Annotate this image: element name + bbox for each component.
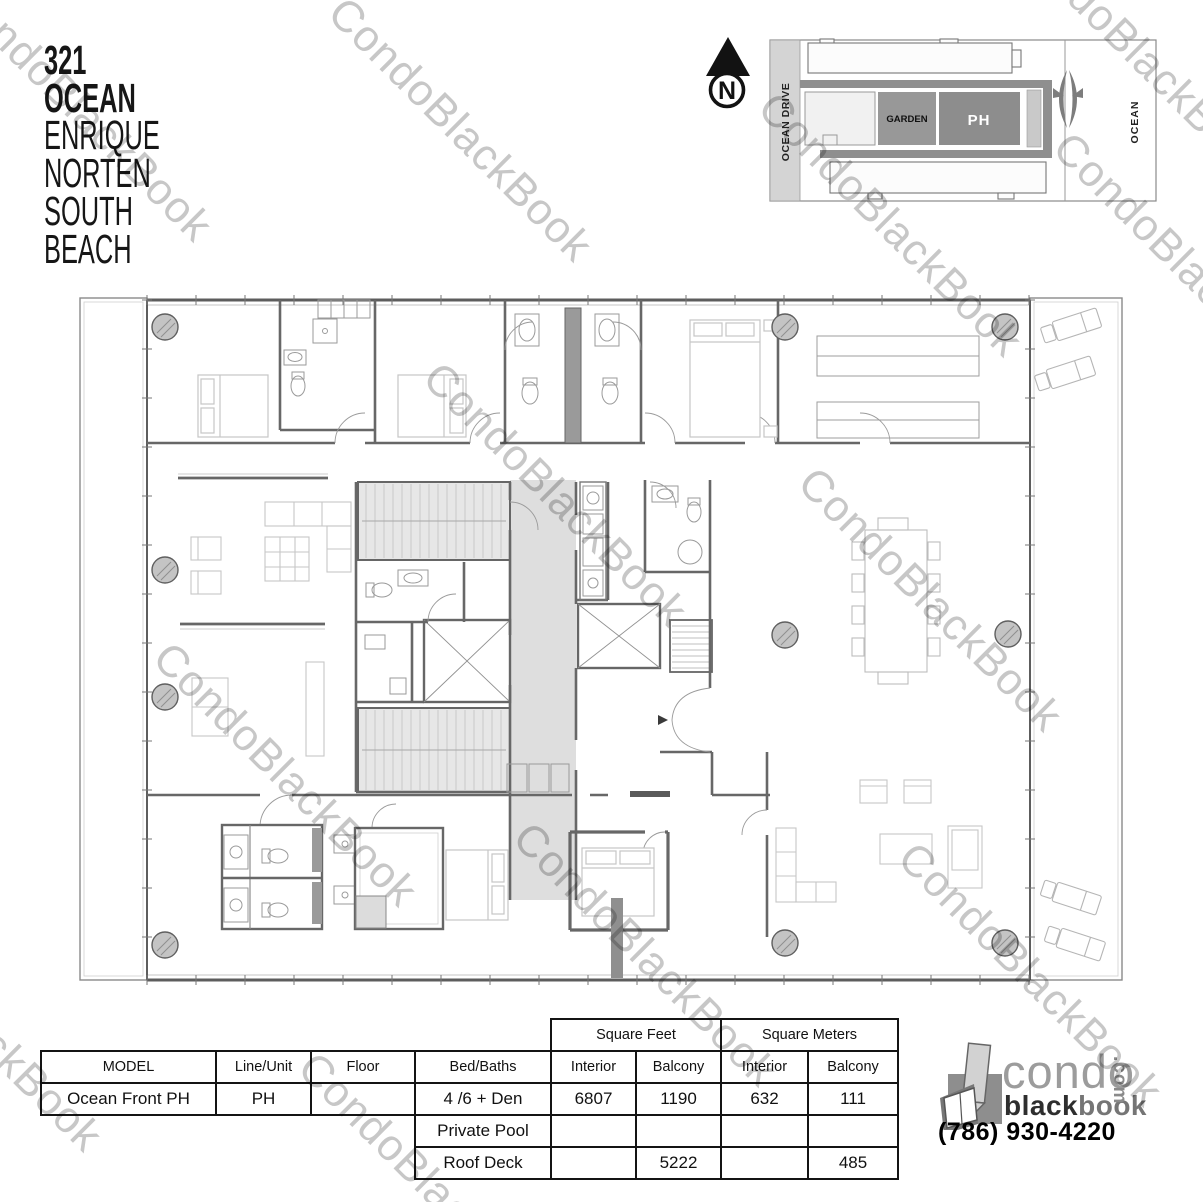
elevator [578,604,660,668]
cell-sf-balcony: 1190 [635,1082,722,1116]
bed [198,375,268,437]
stairwell-lower [358,708,510,792]
col-sf-balcony: Balcony [635,1050,722,1084]
site-lowrise [805,92,875,145]
living-area-south [776,780,982,902]
garden-label: GARDEN [886,114,927,125]
logo-line: BEACH [44,231,160,269]
cell-empty [807,1114,899,1148]
wall-stub [611,898,623,978]
building-logo: 321 OCEAN ENRIQUE NORTEN SOUTH BEACH [44,42,160,268]
right-terrace [1030,298,1122,980]
header-square-meters: Square Meters [720,1018,899,1052]
walkin-closet [355,828,443,929]
logo-line: SOUTH [44,193,160,231]
cell-floor [310,1082,416,1116]
cell-private-pool: Private Pool [414,1114,552,1148]
condoblackbook-logo-icon [938,1038,1010,1130]
cell-empty [720,1146,809,1180]
cell-sf-interior: 6807 [550,1082,637,1116]
col-floor: Floor [310,1050,416,1084]
elevator [424,620,510,702]
plumbing-wall [565,308,581,443]
col-model: MODEL [40,1050,217,1084]
col-sm-balcony: Balcony [807,1050,899,1084]
bed [446,850,508,920]
col-line-unit: Line/Unit [215,1050,312,1084]
cell-roof-deck-sm-balcony: 485 [807,1146,899,1180]
bed [398,375,466,437]
cell-roof-deck-sf-balcony: 5222 [635,1146,722,1180]
left-balcony [80,298,147,980]
ocean-drive-label: OCEAN DRIVE [780,83,792,161]
corridor [510,480,576,900]
floorplan-flyer: 321 OCEAN ENRIQUE NORTEN SOUTH BEACH N O… [0,0,1203,1202]
neighbor-building-north [808,39,1021,73]
cell-bed-baths: 4 /6 + Den [414,1082,552,1116]
site-map: OCEAN DRIVE GARDEN PH OCEAN [768,38,1158,206]
col-bed-baths: Bed/Baths [414,1050,552,1084]
ph-label: PH [968,112,991,129]
entry-arrow-icon [658,715,668,725]
north-arrow-icon: N [700,34,760,116]
phone-number: (786) 930-4220 [938,1118,1116,1147]
col-sf-interior: Interior [550,1050,637,1084]
cell-sm-interior: 632 [720,1082,809,1116]
watermark-text: CondoBlackBook [318,0,602,272]
neighbor-building-south [830,162,1046,199]
floor-plan [60,290,1145,990]
north-label: N [718,77,736,105]
cell-sm-balcony: 111 [807,1082,899,1116]
cell-empty [550,1114,637,1148]
guest-bath-pod [222,825,356,929]
header-square-feet: Square Feet [550,1018,722,1052]
wall-stub [630,791,670,797]
dining-table [852,518,940,684]
planter [817,336,979,438]
cell-roof-deck: Roof Deck [414,1146,552,1180]
cell-empty [720,1114,809,1148]
bathroom-fixtures [284,300,370,396]
col-sm-interior: Interior [720,1050,809,1084]
cell-line-unit: PH [215,1082,312,1116]
cell-empty [550,1146,637,1180]
cell-empty [635,1114,722,1148]
brand-tld: .com [1110,1056,1129,1104]
stairwell-upper [358,482,510,560]
cell-model: Ocean Front PH [40,1082,217,1116]
ocean-label: OCEAN [1129,101,1141,144]
service-stair [670,620,712,672]
living-area-west [178,474,351,756]
